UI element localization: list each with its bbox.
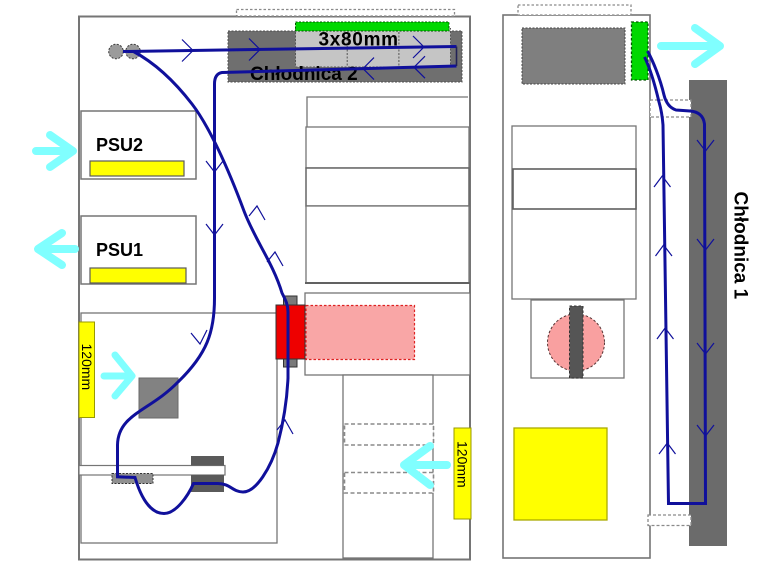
svg-text:Chłodnica 1: Chłodnica 1 — [730, 192, 751, 300]
svg-text:120mm: 120mm — [455, 441, 471, 488]
svg-text:120mm: 120mm — [79, 344, 95, 391]
svg-text:PSU1: PSU1 — [96, 240, 143, 260]
svg-text:Chłodnica 2: Chłodnica 2 — [250, 64, 358, 85]
svg-text:PSU2: PSU2 — [96, 135, 143, 155]
